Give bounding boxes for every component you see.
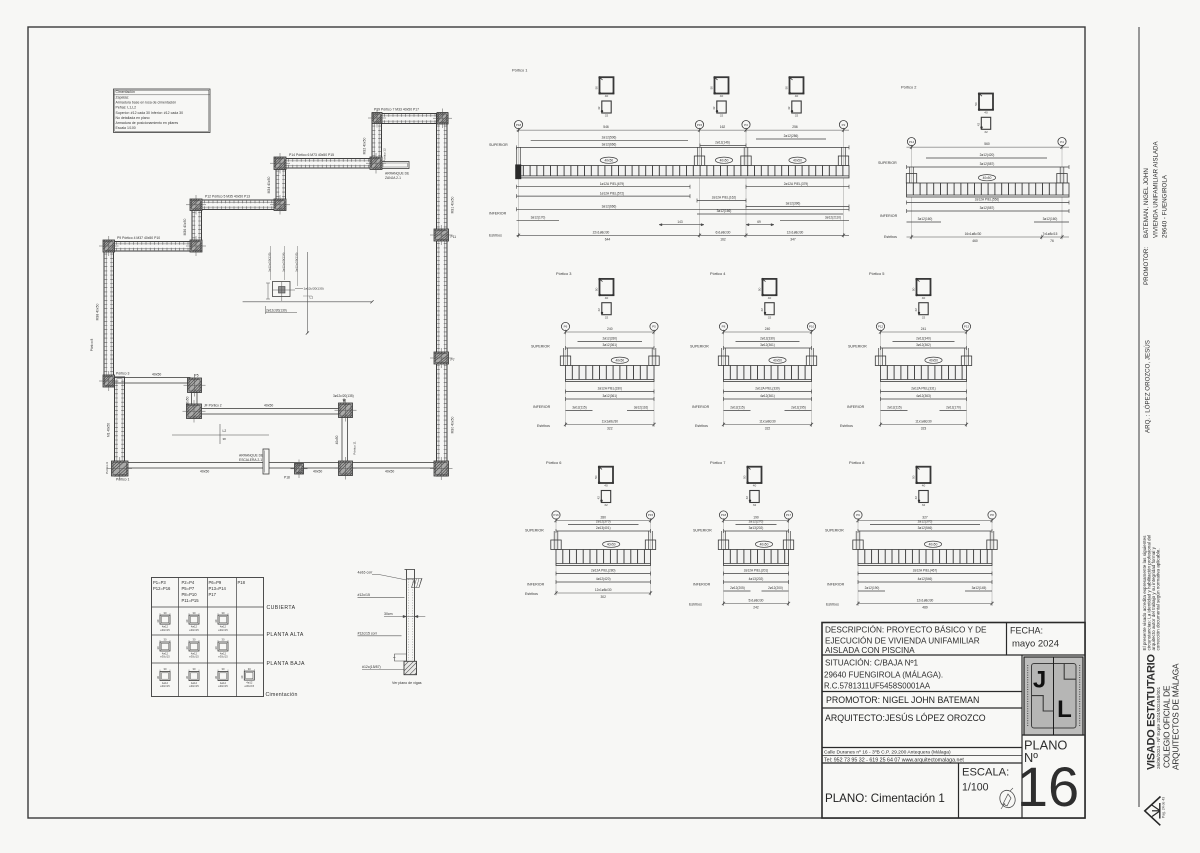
svg-text:2ø12A PIEL(330): 2ø12A PIEL(330) (755, 387, 779, 391)
svg-text:ARQUITECTO:JESÚS LÓPEZ OROZCO: ARQUITECTO:JESÚS LÓPEZ OROZCO (825, 713, 986, 723)
svg-text:3ø12c/20(134): 3ø12c/20(134) (282, 252, 286, 272)
svg-text:3ø12c/20(135): 3ø12c/20(135) (295, 252, 299, 272)
svg-text:e30c/15: e30c/15 (189, 655, 199, 659)
svg-text:Estribos: Estribos (840, 424, 853, 428)
svg-text:5x1ø8c/30: 5x1ø8c/30 (749, 599, 764, 603)
svg-text:76: 76 (1050, 239, 1054, 243)
svg-text:P9: P9 (856, 513, 860, 517)
svg-text:Pórtico 11: Pórtico 11 (353, 441, 357, 455)
svg-text:VIVIENDA UNIFAMILIAR AISLADA: VIVIENDA UNIFAMILIAR AISLADA (1153, 141, 1160, 238)
svg-text:40x50: 40x50 (385, 470, 394, 474)
svg-text:ESCALERA 2-1: ESCALERA 2-1 (239, 458, 262, 462)
svg-text:ARRANQUE DE: ARRANQUE DE (239, 454, 264, 458)
svg-text:42: 42 (745, 496, 749, 500)
svg-text:240: 240 (765, 327, 771, 331)
svg-text:P10: P10 (809, 325, 815, 329)
svg-text:16x1ø8c/30: 16x1ø8c/30 (965, 232, 982, 236)
svg-text:3ø12(666): 3ø12(666) (602, 143, 617, 147)
svg-text:2ø12A PIEL(162): 2ø12A PIEL(162) (712, 196, 736, 200)
svg-text:2ø13(401): 2ø13(401) (596, 526, 611, 530)
svg-text:2ø12(200): 2ø12(200) (768, 586, 783, 590)
svg-text:Escala 1/100: Escala 1/100 (116, 126, 136, 130)
svg-text:40: 40 (605, 94, 609, 98)
svg-text:40: 40 (922, 296, 926, 300)
svg-text:162: 162 (720, 238, 726, 242)
svg-text:L2: L2 (223, 429, 227, 433)
svg-text:Pórtico 1: Pórtico 1 (116, 478, 129, 482)
svg-text:Pórtico 3: Pórtico 3 (116, 372, 129, 376)
svg-text:240: 240 (607, 327, 613, 331)
svg-text:3ø12(166): 3ø12(166) (717, 209, 732, 213)
svg-text:40x50: 40x50 (200, 470, 209, 474)
svg-text:12x1ø8c/30: 12x1ø8c/30 (917, 599, 934, 603)
svg-text:SUPERIOR: SUPERIOR (693, 529, 712, 533)
svg-text:32: 32 (720, 114, 724, 118)
svg-text:11x1ø8c/30: 11x1ø8c/30 (915, 420, 932, 424)
svg-text:2ø12(370): 2ø12(370) (918, 520, 933, 524)
svg-text:50: 50 (974, 102, 978, 106)
svg-text:30: 30 (156, 619, 160, 622)
svg-text:PROMOTOR: NIGEL JOHN BATEMAN: PROMOTOR: NIGEL JOHN BATEMAN (826, 695, 979, 705)
svg-text:SUPERIOR: SUPERIOR (878, 161, 897, 165)
svg-text:40x50: 40x50 (773, 359, 782, 363)
svg-text:40x50: 40x50 (983, 176, 992, 180)
svg-text:INFERIOR: INFERIOR (827, 583, 845, 587)
svg-text:P4: P4 (1060, 140, 1064, 144)
svg-text:Pórtico 4: Pórtico 4 (710, 271, 726, 276)
svg-text:2ø12(146): 2ø12(146) (715, 141, 730, 145)
svg-text:e30c/15: e30c/15 (218, 628, 228, 632)
svg-text:Cimentación: Cimentación (116, 90, 136, 94)
svg-text:e30c/15: e30c/15 (218, 655, 228, 659)
svg-text:SUPERIOR: SUPERIOR (525, 529, 544, 533)
svg-text:32: 32 (605, 315, 609, 319)
svg-text:38: 38 (223, 437, 227, 441)
svg-text:489: 489 (922, 606, 928, 610)
svg-text:INFERIOR: INFERIOR (880, 214, 898, 218)
svg-text:INFERIOR: INFERIOR (847, 405, 865, 409)
svg-text:e30c/15: e30c/15 (245, 684, 255, 688)
svg-text:2ø12A PIEL(280): 2ø12A PIEL(280) (591, 569, 615, 573)
svg-text:644: 644 (605, 238, 611, 242)
svg-text:42: 42 (597, 308, 601, 312)
svg-text:PLANO: Cimentación 1: PLANO: Cimentación 1 (825, 792, 945, 805)
svg-text:42: 42 (914, 308, 918, 312)
svg-text:42: 42 (976, 123, 980, 127)
svg-text:2ø12A PIEL(331): 2ø12A PIEL(331) (911, 387, 935, 391)
svg-text:BATEMAN, NIGEL JOHN: BATEMAN, NIGEL JOHN (1143, 168, 1150, 238)
svg-text:Armadura base en losa de cimen: Armadura base en losa de cimentación (116, 101, 177, 105)
svg-text:50: 50 (758, 287, 762, 291)
svg-text:mayo 2024: mayo 2024 (1012, 639, 1059, 650)
svg-text:Ver plano de vigas: Ver plano de vigas (392, 681, 422, 685)
svg-text:3ø12(170): 3ø12(170) (531, 216, 546, 220)
svg-text:Tel: 952 73 95 32 - 619 25 64: Tel: 952 73 95 32 - 619 25 64 07 www.arq… (824, 758, 964, 764)
svg-text:162: 162 (720, 125, 726, 129)
svg-text:P18: P18 (284, 476, 290, 480)
svg-text:M36 40x50: M36 40x50 (183, 219, 187, 236)
svg-text:40x50: 40x50 (615, 359, 624, 363)
svg-text:Pórtico 8: Pórtico 8 (849, 460, 864, 465)
svg-text:40x50: 40x50 (929, 359, 938, 363)
svg-text:P8: P8 (990, 513, 994, 517)
svg-text:M30 40x50: M30 40x50 (451, 417, 455, 434)
svg-text:JF Pórtico 2: JF Pórtico 2 (204, 404, 222, 408)
svg-text:P8=P10: P8=P10 (182, 592, 198, 597)
svg-text:P9 Pórtico 4 M37 40x50: P9 Pórtico 4 M37 40x50 P10 (117, 236, 160, 240)
svg-text:e30c/15: e30c/15 (160, 628, 170, 632)
svg-text:PLANTA BAJA: PLANTA BAJA (267, 661, 305, 667)
svg-text:3ø12(160): 3ø12(160) (1043, 217, 1058, 221)
svg-text:3ø12(115): 3ø12(115) (572, 406, 586, 410)
svg-text:12x1ø8c/30: 12x1ø8c/30 (595, 588, 612, 592)
svg-text:Armadura de posicionamiento en: Armadura de posicionamiento en pilares (116, 121, 179, 125)
svg-text:EJECUCIÓN DE VIVIENDA UNIFAMIL: EJECUCIÓN DE VIVIENDA UNIFAMILIAR (825, 636, 980, 646)
svg-text:P18: P18 (721, 513, 727, 517)
svg-text:No detallada en plano: No detallada en plano (116, 116, 150, 120)
svg-text:40: 40 (922, 484, 926, 488)
svg-text:347: 347 (790, 238, 796, 242)
svg-text:3ø13(202): 3ø13(202) (749, 526, 764, 530)
svg-text:2ø12(420): 2ø12(420) (980, 153, 995, 157)
svg-text:7x1ø8c/15: 7x1ø8c/15 (1043, 232, 1058, 236)
svg-text:32: 32 (604, 503, 608, 507)
svg-text:Estribos: Estribos (537, 424, 550, 428)
svg-text:42: 42 (596, 496, 600, 500)
svg-text:P12=P16: P12=P16 (153, 586, 171, 591)
svg-text:40x50: 40x50 (604, 159, 613, 163)
svg-text:Cimentación: Cimentación (266, 692, 298, 698)
svg-text:4ø12(420): 4ø12(420) (596, 577, 611, 581)
svg-text:69: 69 (757, 220, 761, 224)
svg-text:40: 40 (984, 111, 988, 115)
svg-text:50: 50 (785, 86, 789, 90)
svg-text:M34 40x50: M34 40x50 (267, 177, 271, 194)
svg-text:460: 460 (972, 239, 978, 243)
svg-text:50: 50 (710, 86, 714, 90)
svg-text:P7: P7 (451, 358, 455, 362)
svg-text:e30c/15: e30c/15 (189, 684, 199, 688)
svg-text:40x50: 40x50 (760, 543, 769, 547)
svg-text:50: 50 (595, 287, 599, 291)
svg-text:e30c/15: e30c/15 (189, 628, 199, 632)
svg-text:3ø12(145): 3ø12(145) (972, 586, 987, 590)
svg-text:3ø12(2110): 3ø12(2110) (825, 216, 841, 220)
svg-text:30: 30 (214, 619, 218, 622)
svg-text:546: 546 (603, 125, 609, 129)
svg-text:M31 40x50: M31 40x50 (451, 197, 455, 214)
svg-text:2ø12(330): 2ø12(330) (602, 337, 617, 341)
svg-text:32: 32 (753, 503, 757, 507)
svg-text:P2: P2 (842, 123, 846, 127)
svg-text:INFERIOR: INFERIOR (533, 405, 551, 409)
svg-text:2ø12c/20(130): 2ø12c/20(130) (266, 309, 287, 313)
svg-text:30: 30 (193, 638, 196, 642)
svg-text:256: 256 (792, 125, 798, 129)
svg-text:32: 32 (922, 503, 926, 507)
svg-text:R.C.5781311UF5458S0001AA: R.C.5781311UF5458S0001AA (824, 682, 931, 691)
svg-text:Pórtico 12: Pórtico 12 (383, 148, 387, 162)
svg-text:AISLADA CON PISCINA: AISLADA CON PISCINA (825, 646, 915, 655)
svg-text:ARRANQUE DE: ARRANQUE DE (385, 172, 410, 176)
svg-text:30: 30 (164, 638, 167, 642)
svg-text:P12 Pórtico 5 M35 40x50: P12 Pórtico 5 M35 40x50 P13 (205, 195, 250, 199)
svg-text:PLANTA ALTA: PLANTA ALTA (267, 632, 304, 638)
svg-text:50: 50 (912, 475, 916, 479)
svg-text:3ø12(396): 3ø12(396) (786, 202, 801, 206)
svg-text:ZANJA 2-1: ZANJA 2-1 (385, 176, 401, 180)
svg-text:3ø12c/20(135): 3ø12c/20(135) (333, 394, 354, 398)
svg-text:P15: P15 (648, 513, 654, 517)
svg-text:30: 30 (164, 611, 167, 615)
svg-text:30: 30 (185, 676, 189, 679)
svg-text:e30c/15: e30c/15 (160, 655, 170, 659)
svg-text:4ø12(361): 4ø12(361) (760, 394, 775, 398)
svg-text:Pórtico 6: Pórtico 6 (546, 460, 561, 465)
svg-text:42: 42 (597, 106, 601, 110)
svg-text:Pórtico 1: Pórtico 1 (512, 68, 527, 73)
svg-text:#12c/15: #12c/15 (358, 593, 371, 597)
svg-text:P13=P14: P13=P14 (209, 586, 227, 591)
svg-text:40x50: 40x50 (152, 373, 161, 377)
svg-text:P11=P15: P11=P15 (182, 598, 200, 603)
svg-text:2ø12(286): 2ø12(286) (784, 134, 799, 138)
svg-text:3ø12c/20(135): 3ø12c/20(135) (268, 252, 272, 272)
svg-text:2ø12A PIEL(201): 2ø12A PIEL(201) (744, 569, 768, 573)
svg-text:P18: P18 (238, 580, 246, 585)
svg-text:143: 143 (677, 220, 683, 224)
svg-text:30: 30 (156, 646, 160, 649)
svg-text:1ø12c/20(130): 1ø12c/20(130) (304, 287, 324, 291)
svg-text:Pórtico 9: Pórtico 9 (105, 462, 109, 474)
svg-text:4ø12(363): 4ø12(363) (916, 394, 931, 398)
svg-text:INFERIOR: INFERIOR (693, 583, 711, 587)
svg-text:30: 30 (214, 646, 218, 649)
svg-text:INFERIOR: INFERIOR (489, 212, 507, 216)
svg-text:1ø12A PIEL(572): 1ø12A PIEL(572) (600, 191, 624, 195)
svg-text:40x50: 40x50 (929, 543, 938, 547)
svg-text:4ø12(546): 4ø12(546) (918, 577, 933, 581)
svg-text:2ø12(330): 2ø12(330) (760, 337, 775, 341)
svg-text:3ø12(361): 3ø12(361) (602, 343, 617, 347)
svg-text:323: 323 (921, 427, 927, 431)
svg-text:INFERIOR: INFERIOR (692, 405, 710, 409)
svg-text:3ø12(116): 3ø12(116) (634, 406, 648, 410)
svg-text:560: 560 (984, 142, 990, 146)
svg-text:3ø12(546): 3ø12(546) (918, 526, 933, 530)
svg-text:26/06/2024 - Nº Expte 2024/002: 26/06/2024 - Nº Expte 2024/002448/001 (1156, 686, 1161, 769)
svg-text:50: 50 (743, 475, 747, 479)
svg-text:40x50: 40x50 (793, 159, 802, 163)
svg-text:Peñas: L1,L2: Peñas: L1,L2 (116, 106, 137, 110)
svg-text:SITUACIÓN: C/BAJA Nº1: SITUACIÓN: C/BAJA Nº1 (825, 658, 919, 668)
svg-text:30: 30 (193, 667, 196, 671)
svg-text:P11: P11 (451, 235, 457, 239)
svg-text:322: 322 (607, 427, 613, 431)
svg-text:Estribos: Estribos (489, 234, 502, 238)
svg-text:32: 32 (922, 315, 926, 319)
svg-text:29640 - FUENGIROLA: 29640 - FUENGIROLA (1162, 174, 1169, 238)
svg-text:P5: P5 (195, 374, 199, 378)
svg-text:30: 30 (185, 646, 189, 649)
svg-text:e30c/15: e30c/15 (160, 684, 170, 688)
svg-text:30: 30 (164, 667, 167, 671)
svg-text:2ø12A PIEL(330): 2ø12A PIEL(330) (598, 387, 622, 391)
svg-text:30: 30 (185, 619, 189, 622)
svg-text:P5=P7: P5=P7 (182, 586, 195, 591)
svg-text:SUPERIOR: SUPERIOR (489, 143, 508, 147)
svg-text:2ø12(190): 2ø12(190) (865, 586, 880, 590)
svg-text:32: 32 (795, 114, 799, 118)
svg-text:11x1ø8c/30: 11x1ø8c/30 (759, 420, 776, 424)
svg-text:2ø12(115): 2ø12(115) (730, 406, 744, 410)
svg-text:2ø12(340): 2ø12(340) (916, 337, 931, 341)
svg-text:P5: P5 (652, 325, 656, 329)
svg-text:40x50: 40x50 (264, 404, 273, 408)
svg-text:40: 40 (604, 484, 608, 488)
svg-text:P1=P3: P1=P3 (153, 580, 166, 585)
svg-text:22x1ø8c/30: 22x1ø8c/30 (593, 231, 610, 235)
svg-text:Superior: #12 cada 30 Inferi: Superior: #12 cada 30 Inferior: #12 cada… (116, 111, 184, 115)
svg-text:SUPERIOR: SUPERIOR (690, 345, 709, 349)
svg-text:P13: P13 (964, 325, 970, 329)
svg-text:ARQ. : LÓPEZ OROZCO, JESÚS: ARQ. : LÓPEZ OROZCO, JESÚS (1145, 340, 1152, 433)
svg-text:2ø12(170): 2ø12(170) (946, 406, 961, 410)
svg-text:3ø12(587): 3ø12(587) (980, 206, 995, 210)
svg-text:3ø12(666): 3ø12(666) (602, 205, 617, 209)
svg-text:2ø12A PIEL(467): 2ø12A PIEL(467) (913, 569, 937, 573)
svg-text:Calle Duranes nº 16 - 3ºB: Calle Duranes nº 16 - 3ºB C.P. 29.200 An… (824, 750, 951, 756)
svg-text:PROMOTOR:: PROMOTOR: (1143, 247, 1150, 285)
svg-text:2ø12(506): 2ø12(506) (602, 136, 617, 140)
svg-text:#12c/15 corr: #12c/15 corr (358, 632, 378, 636)
svg-text:40: 40 (753, 484, 757, 488)
svg-text:12x1ø8c/30: 12x1ø8c/30 (787, 231, 804, 235)
svg-text:Estribos: Estribos (695, 424, 708, 428)
svg-text:e30c/15: e30c/15 (218, 684, 228, 688)
svg-text:P8: P8 (722, 325, 726, 329)
svg-text:P18: P18 (516, 123, 522, 127)
svg-text:Estribos: Estribos (525, 592, 538, 596)
svg-text:M1 40x50: M1 40x50 (107, 423, 111, 437)
svg-text:DESCRIPCIÓN: PROYECTO BÁSICO Y: DESCRIPCIÓN: PROYECTO BÁSICO Y DE (825, 625, 987, 635)
svg-text:30: 30 (214, 676, 218, 679)
svg-text:4ø13(202): 4ø13(202) (749, 577, 764, 581)
svg-text:P19 Pórtico 7 M33 40x50: P19 Pórtico 7 M33 40x50 P17 (374, 108, 419, 112)
svg-text:40x50: 40x50 (313, 470, 322, 474)
svg-text:30: 30 (193, 611, 196, 615)
svg-text:30: 30 (156, 676, 160, 679)
svg-text:P3: P3 (744, 123, 748, 127)
svg-text:40: 40 (795, 94, 799, 98)
svg-text:P6=P9: P6=P9 (209, 580, 222, 585)
svg-text:3ø12(587): 3ø12(587) (980, 162, 995, 166)
svg-text:50: 50 (595, 86, 599, 90)
svg-text:40x50: 40x50 (335, 435, 339, 444)
svg-text:SUPERIOR: SUPERIOR (825, 529, 844, 533)
svg-text:SUPERIOR: SUPERIOR (531, 345, 550, 349)
svg-text:1/100: 1/100 (962, 782, 989, 794)
svg-text:Pórtico 2: Pórtico 2 (901, 85, 916, 90)
svg-text:ESCALA:: ESCALA: (962, 767, 1009, 779)
svg-text:2ø12A PIEL(556): 2ø12A PIEL(556) (975, 198, 999, 202)
svg-text:32: 32 (768, 315, 772, 319)
svg-text:Estribos: Estribos (826, 603, 839, 607)
svg-text:2ø12(270): 2ø12(270) (749, 520, 764, 524)
svg-text:2ø12(115): 2ø12(115) (887, 406, 901, 410)
svg-text:Pórtico 3: Pórtico 3 (556, 271, 571, 276)
svg-text:29640 FUENGIROLA (MÁLAGA).: 29640 FUENGIROLA (MÁLAGA). (824, 671, 943, 680)
svg-text:2ø12(195): 2ø12(195) (791, 406, 806, 410)
svg-text:40: 40 (720, 94, 724, 98)
svg-text:50: 50 (594, 475, 598, 479)
svg-text:30: 30 (222, 611, 225, 615)
svg-text:1ø12A PIEL(679): 1ø12A PIEL(679) (600, 182, 624, 186)
svg-text:3ø12(361): 3ø12(361) (602, 394, 617, 398)
svg-text:50: 50 (912, 287, 916, 291)
svg-text:42: 42 (760, 308, 764, 312)
svg-text:P2=P4: P2=P4 (182, 580, 195, 585)
svg-text:42: 42 (712, 106, 716, 110)
svg-text:Pag. 24 de 43: Pag. 24 de 43 (1162, 797, 1166, 818)
svg-text:242: 242 (753, 606, 759, 610)
svg-text:42: 42 (914, 496, 918, 500)
svg-text:CUBIERTA: CUBIERTA (267, 605, 296, 611)
svg-text:corrección documental según no: corrección documental según normativa ap… (1156, 548, 1161, 650)
svg-text:30cm: 30cm (384, 612, 393, 616)
svg-text:3ø12(362): 3ø12(362) (916, 343, 931, 347)
svg-text:322: 322 (765, 427, 771, 431)
svg-text:P14 Pórtico 6 M73 40x50: P14 Pórtico 6 M73 40x50 P15 (289, 153, 334, 157)
svg-text:2ø12(205): 2ø12(205) (730, 586, 745, 590)
svg-text:M38 40x50: M38 40x50 (96, 304, 100, 321)
svg-text:Pórtico 7: Pórtico 7 (710, 460, 725, 465)
svg-text:J: J (1033, 667, 1046, 694)
svg-text:M32 40x50: M32 40x50 (363, 138, 367, 155)
svg-text:6x1ø8c/30: 6x1ø8c/30 (716, 231, 731, 235)
svg-text:42: 42 (787, 106, 791, 110)
svg-text:Zapatas:: Zapatas: (116, 95, 130, 99)
svg-text:FECHA:: FECHA: (1010, 626, 1043, 636)
svg-text:40: 40 (768, 296, 772, 300)
svg-text:Estribos: Estribos (884, 235, 897, 239)
svg-text:L: L (1057, 696, 1072, 723)
svg-text:2ø12A PIEL(379): 2ø12A PIEL(379) (784, 182, 808, 186)
svg-text:40x50: 40x50 (186, 396, 190, 405)
svg-text:SUPERIOR: SUPERIOR (848, 345, 867, 349)
svg-text:241: 241 (921, 327, 927, 331)
svg-text:P17: P17 (209, 592, 217, 597)
svg-text:3ø12(361): 3ø12(361) (760, 343, 775, 347)
svg-text:Pórtico 8: Pórtico 8 (90, 338, 94, 351)
svg-text:40x50: 40x50 (607, 543, 616, 547)
svg-text:P6: P6 (564, 325, 568, 329)
svg-text:4ø16 corr: 4ø16 corr (358, 571, 374, 575)
svg-text:30: 30 (222, 667, 225, 671)
svg-text:32: 32 (984, 130, 988, 134)
svg-text:302: 302 (600, 595, 606, 599)
svg-text:32: 32 (605, 114, 609, 118)
svg-text:ARQUITECTOS DE MÁLAGA: ARQUITECTOS DE MÁLAGA (1171, 663, 1181, 770)
svg-text:P14: P14 (909, 140, 915, 144)
svg-text:30: 30 (222, 638, 225, 642)
svg-text:INFERIOR: INFERIOR (527, 583, 545, 587)
svg-text:40: 40 (605, 296, 609, 300)
svg-text:P15: P15 (697, 123, 703, 127)
svg-text:30: 30 (248, 667, 251, 671)
svg-text:Pórtico 5: Pórtico 5 (869, 271, 884, 276)
svg-text:P16: P16 (553, 513, 559, 517)
